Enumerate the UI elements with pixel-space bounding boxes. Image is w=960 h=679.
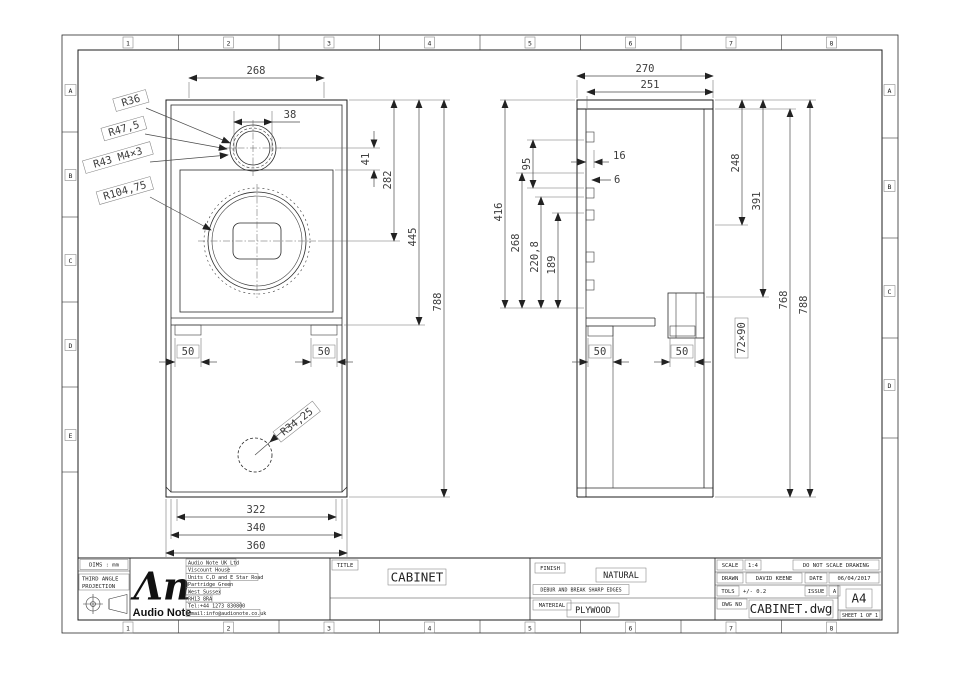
issue-label: ISSUE [808,589,825,595]
zone-number: 2 [227,40,231,48]
title-block: DIMS : mm THIRD ANGLE PROJECTION Λn Audi… [78,558,881,620]
batten-right [311,325,337,335]
side-view [577,100,713,497]
zone-number: 7 [729,40,733,48]
issue-value: A [833,589,837,595]
dim-mid-height: 282 [382,171,394,190]
zone-letter: D [888,382,892,390]
side-view-dimensions: 270 251 416 268 95 220,8 189 16 6 248 [493,63,816,497]
tweeter-hole [225,120,281,176]
terminal-recess [668,293,704,338]
batten-left [175,325,201,335]
tols-label: TOLS [721,589,734,595]
material-label: MATERIAL [539,603,566,609]
address-line: Audio Note UK Ltd [188,561,239,567]
zone-letter: D [69,342,73,350]
date-value: 06/04/2017 [837,576,870,582]
batten-left-side [588,326,613,336]
zone-number: 5 [528,40,532,48]
dim-front-inner-width: 268 [247,65,266,77]
dim-h220-8: 220,8 [529,241,541,273]
dim-h248: 248 [730,154,742,173]
dim-chamber: 416 [493,203,505,222]
dim-bottom-inner: 322 [247,504,266,516]
zone-letter: B [888,183,892,191]
address-line: Partridge Green [188,582,233,588]
drawing-sheet: 1 2 3 4 5 6 7 8 1 2 3 4 5 6 7 8 A B C D … [0,0,960,679]
zone-number: 4 [428,625,432,633]
batten-right-side [670,326,695,336]
projection-label-line2: PROJECTION [82,584,115,590]
dim-h391: 391 [751,192,763,211]
dim-bottom-outer: 360 [247,540,266,552]
address-line: Units C,D and E Star Road [188,575,263,581]
dim-gap: 6 [614,174,620,186]
address-line: RH13 8RA [188,597,212,603]
cad-drawing: 1 2 3 4 5 6 7 8 1 2 3 4 5 6 7 8 A B C D … [0,0,960,679]
zone-number: 8 [830,40,834,48]
drawn-value: DAVID KEENE [756,576,792,582]
drawing-title: CABINET [391,569,444,584]
no-scale-note: DO NOT SCALE DRAWING [803,563,869,569]
zone-letter: A [69,87,73,95]
dim-tweeter-width: 38 [284,109,297,121]
projection-cell: DIMS : mm THIRD ANGLE PROJECTION [79,560,129,615]
address-line: Tel:+44 1273 830800 [188,604,245,610]
dim-tweeter-offset: 41 [360,153,372,166]
zone-number: 6 [629,625,633,633]
zone-number: 2 [227,625,231,633]
dim-shelf-height: 445 [407,228,419,247]
dim-front-height: 788 [432,293,444,312]
address-line: Viscount House [188,568,230,574]
dim-side-height: 788 [798,296,810,315]
projection-label-line1: THIRD ANGLE [82,577,118,583]
finish-value: NATURAL [603,571,639,581]
material-value: PLYWOOD [575,606,611,616]
scale-value: 1:4 [748,563,759,569]
dim-bottom-mid: 340 [247,522,266,534]
date-label: DATE [809,576,822,582]
dim-h189: 189 [546,256,558,275]
dim-side-batten-right: 50 [676,346,689,358]
label-woofer-radius: R104,75 [102,179,148,203]
sheet-frame: 1 2 3 4 5 6 7 8 1 2 3 4 5 6 7 8 A B C D … [62,35,898,633]
front-view [166,100,347,497]
dim-h268: 268 [510,234,522,253]
label-tweeter-bolts: R43 M4×3 [92,145,144,170]
paper-size: A4 [851,591,866,606]
sheet-number: SHEET 1 OF 1 [842,613,878,619]
label-tweeter-r36: R36 [120,93,142,110]
address-block: Audio Note UK Ltd Viscount House Units C… [186,559,266,617]
edges-note: DEBUR AND BREAK SHARP EDGES [540,588,621,594]
dim-batten-left: 50 [182,346,195,358]
dim-brace-depth: 16 [613,150,626,162]
drawn-label: DRAWN [722,576,739,582]
label-tweeter-r47-5: R47,5 [107,119,141,139]
zone-number: 6 [629,40,633,48]
dim-brace-window: 95 [521,158,533,171]
dims-units-label: DIMS : mm [89,563,119,569]
zone-number: 4 [428,40,432,48]
zone-number: 8 [830,625,834,633]
address-line: West Sussex [188,589,221,595]
zone-letter: A [888,87,892,95]
zone-letter: C [888,288,892,296]
third-angle-symbol-icon [83,594,127,614]
zone-number: 1 [126,40,130,48]
dim-batten-right: 50 [318,346,331,358]
dim-depth-inner: 251 [641,79,660,91]
woofer-hole [198,184,316,298]
zone-number: 7 [729,625,733,633]
dwg-file-name: CABINET.dwg [750,601,833,616]
dwg-no-label: DWG NO [722,602,742,608]
zone-number: 3 [327,625,331,633]
title-cell: TITLE CABINET [332,560,446,585]
label-recess: 72×90 [736,322,748,354]
zone-letter: E [69,432,73,440]
dim-depth-outer: 270 [636,63,655,75]
dim-inner-height: 768 [778,291,790,310]
logo-text: Audio Note [133,607,192,619]
zone-letter: B [69,172,73,180]
tols-value: +/- 0.2 [743,589,766,595]
zone-number: 3 [327,40,331,48]
zone-number: 1 [126,625,130,633]
scale-label: SCALE [722,563,739,569]
zone-letter: C [69,257,73,265]
finish-label: FINISH [540,566,560,572]
label-port-radius: R34,25 [278,406,315,439]
zone-number: 5 [528,625,532,633]
address-line: email:info@audionote.co.uk [188,611,266,617]
front-view-dimensions: 268 38 41 282 445 788 50 50 [82,65,450,557]
title-label: TITLE [337,563,354,569]
audio-note-logo-icon: Λn [130,564,190,609]
zone-letters-right: A B C D [884,85,895,391]
finish-material-cell: FINISH NATURAL DEBUR AND BREAK SHARP EDG… [533,563,646,617]
logo-cell: Λn Audio Note Audio Note UK Ltd Viscount… [130,559,266,619]
dim-side-batten-left: 50 [594,346,607,358]
